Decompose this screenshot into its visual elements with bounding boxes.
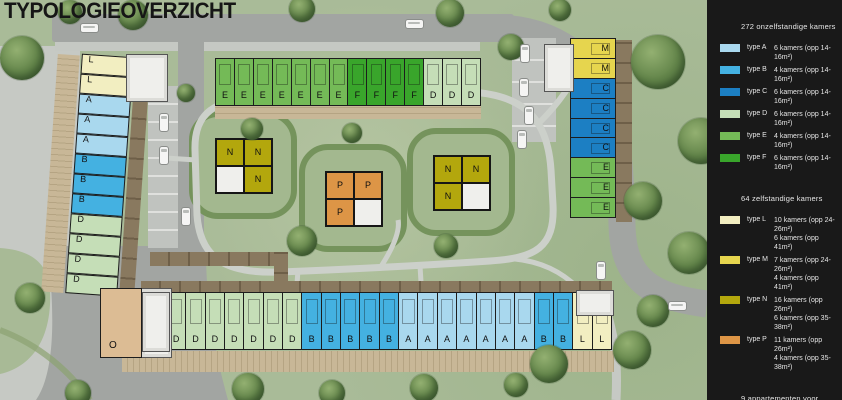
legend-row: type L10 kamers (opp 24-26m²)6 kamers (o…	[720, 216, 838, 252]
legend-panel: 272 onzelfstandige kamerstype A6 kamers …	[707, 0, 842, 400]
pavilion-east: NNN	[433, 155, 491, 211]
unit-label: M	[602, 64, 610, 73]
legend-type-label: type C	[747, 88, 774, 96]
legend-row: type M7 kamers (opp 24-26m²)4 kamers (op…	[720, 256, 838, 292]
tree	[177, 84, 195, 102]
unit-label: N	[473, 165, 480, 174]
legend-description: 16 kamers (opp 26m²)6 kamers (opp 35-38m…	[774, 296, 838, 332]
unit-label: D	[192, 335, 199, 344]
tree	[530, 345, 568, 383]
unit-label: A	[483, 335, 489, 344]
unit-label: D	[468, 91, 475, 100]
unit-label: A	[425, 335, 431, 344]
legend-type-label: type D	[747, 110, 774, 118]
unit-label: D	[72, 275, 80, 293]
tree	[232, 373, 264, 400]
unit-label: B	[79, 175, 86, 193]
unit-D: D	[424, 58, 443, 106]
legend-type-label: type M	[747, 256, 774, 264]
unit-B: B	[554, 292, 573, 350]
unit-label: F	[374, 91, 380, 100]
legend-swatch	[720, 296, 740, 304]
legend-section: 272 onzelfstandige kamerstype A6 kamers …	[720, 22, 838, 172]
legend-type-label: type N	[747, 296, 774, 304]
unit-M: M	[570, 38, 616, 59]
tree	[436, 0, 464, 27]
unit-A: A	[515, 292, 534, 350]
unit-label: P	[365, 181, 371, 190]
car	[80, 23, 99, 33]
unit-label: E	[298, 91, 304, 100]
unit-label: A	[502, 335, 508, 344]
unit-label: B	[367, 335, 373, 344]
unit-O: O	[100, 288, 142, 358]
tree	[15, 283, 45, 313]
unit-E: E	[570, 158, 616, 178]
legend-row: type P11 kamers (opp 26m²)4 kamers (opp …	[720, 336, 838, 372]
unit-label: L	[580, 335, 585, 344]
unit-label: C	[603, 84, 610, 93]
unit-D: D	[462, 58, 481, 106]
car	[159, 146, 169, 165]
legend-description: 6 kamers (opp 14-16m²)	[774, 88, 838, 106]
unit-label: E	[222, 91, 228, 100]
unit-E: E	[254, 58, 273, 106]
unit-label: D	[212, 335, 219, 344]
unit-label: E	[603, 163, 609, 172]
unit-label: D	[74, 255, 82, 273]
unit-label: A	[521, 335, 527, 344]
unit-A: A	[457, 292, 476, 350]
legend-type-label: type L	[747, 216, 774, 224]
unit-label: B	[78, 195, 85, 213]
legend-swatch	[720, 88, 740, 96]
tree	[287, 226, 317, 256]
legend-type-label: type F	[747, 154, 774, 162]
legend-row: type N16 kamers (opp 26m²)6 kamers (opp …	[720, 296, 838, 332]
unit-D: D	[225, 292, 244, 350]
car	[520, 44, 530, 63]
unit-label: E	[335, 91, 341, 100]
legend-type-label: type E	[747, 132, 774, 140]
unit-A: A	[418, 292, 437, 350]
unit-core	[462, 183, 490, 210]
legend-description: 4 kamers (opp 14-16m²)	[774, 66, 838, 84]
service-block-sw	[142, 292, 170, 352]
unit-F: F	[367, 58, 386, 106]
unit-label: E	[317, 91, 323, 100]
legend-type-label: type P	[747, 336, 774, 344]
gallery-link-h	[150, 252, 288, 266]
tree	[65, 380, 91, 400]
tree	[624, 182, 662, 220]
legend-section: 64 zelfstandige kamerstype L10 kamers (o…	[720, 194, 838, 372]
legend-swatch	[720, 44, 740, 52]
unit-D: D	[264, 292, 283, 350]
unit-label: D	[449, 91, 456, 100]
unit-B: B	[322, 292, 341, 350]
tree	[637, 295, 669, 327]
unit-label: F	[411, 91, 417, 100]
unit-label: B	[541, 335, 547, 344]
unit-label: C	[603, 143, 610, 152]
service-block-se	[576, 290, 614, 316]
tree	[504, 373, 528, 397]
pavilion-west: NNN	[215, 138, 273, 194]
unit-core	[216, 166, 244, 193]
unit-label: E	[279, 91, 285, 100]
unit-M: M	[570, 59, 616, 79]
legend-description: 4 kamers (opp 14-16m²)	[774, 132, 838, 150]
tree	[549, 0, 571, 21]
unit-A: A	[477, 292, 496, 350]
unit-E: E	[215, 58, 235, 106]
legend-swatch	[720, 66, 740, 74]
legend-swatch	[720, 110, 740, 118]
unit-label: L	[599, 335, 604, 344]
legend-sections: 272 onzelfstandige kamerstype A6 kamers …	[720, 22, 838, 400]
building-north: EEEEEEEFFFFDDD	[215, 58, 481, 106]
unit-label: F	[393, 91, 399, 100]
legend-description: 10 kamers (opp 24-26m²)6 kamers (opp 41m…	[774, 216, 838, 252]
legend-description: 11 kamers (opp 26m²)4 kamers (opp 35-38m…	[774, 336, 838, 372]
unit-label: A	[85, 95, 92, 113]
unit-label: N	[255, 148, 262, 157]
tree	[319, 380, 345, 400]
tree	[410, 374, 438, 400]
unit-label: E	[603, 203, 609, 212]
building-south: DDDDDDDBBBBBAAAAAAABBLL	[166, 292, 612, 350]
unit-N: N	[462, 156, 490, 183]
legend-swatch	[720, 154, 740, 162]
unit-C: C	[570, 79, 616, 99]
pavilion-center: PPP	[325, 171, 383, 227]
unit-label: E	[603, 183, 609, 192]
legend-description: 6 kamers (opp 14-16m²)	[774, 154, 838, 172]
unit-label: A	[82, 135, 89, 153]
unit-P: P	[326, 172, 354, 199]
unit-A: A	[399, 292, 418, 350]
unit-label: L	[86, 75, 92, 93]
legend-swatch	[720, 132, 740, 140]
legend-heading: 9 appartementen voor PhD-ers	[741, 394, 838, 400]
unit-label: D	[289, 335, 296, 344]
unit-E: E	[570, 198, 616, 218]
unit-F: F	[386, 58, 405, 106]
unit-F: F	[348, 58, 367, 106]
unit-E: E	[235, 58, 254, 106]
unit-N: N	[434, 156, 462, 183]
unit-E: E	[273, 58, 292, 106]
unit-label: N	[445, 192, 452, 201]
tree	[0, 36, 44, 80]
unit-F: F	[405, 58, 424, 106]
unit-label: A	[463, 335, 469, 344]
site-plan: LLAAABBBDDDD EEEEEEEFFFFDDD MMCCCCEEE DD…	[0, 0, 707, 400]
unit-label: N	[227, 148, 234, 157]
unit-B: B	[360, 292, 379, 350]
unit-label: M	[602, 44, 610, 53]
car	[405, 19, 424, 29]
legend-swatch	[720, 256, 740, 264]
unit-label: B	[386, 335, 392, 344]
car	[668, 301, 687, 311]
unit-label: C	[603, 124, 610, 133]
unit-label: D	[173, 335, 180, 344]
gallery-link-v	[274, 252, 288, 292]
legend-type-label: type B	[747, 66, 774, 74]
legend-swatch	[720, 216, 740, 224]
legend-description: 6 kamers (opp 14-16m²)	[774, 44, 838, 62]
legend-heading: 272 onzelfstandige kamers	[741, 22, 838, 31]
tree	[613, 331, 651, 369]
legend-description: 7 kamers (opp 24-26m²)4 kamers (opp 41m²…	[774, 256, 838, 292]
unit-E: E	[292, 58, 311, 106]
unit-A: A	[438, 292, 457, 350]
unit-label: D	[270, 335, 277, 344]
legend-type-label: type A	[747, 44, 774, 52]
unit-label: E	[260, 91, 266, 100]
unit-label: A	[444, 335, 450, 344]
unit-label: B	[328, 335, 334, 344]
car	[519, 78, 529, 97]
service-block-ne	[544, 44, 574, 92]
unit-label: D	[76, 215, 84, 233]
unit-N: N	[244, 166, 272, 193]
unit-C: C	[570, 119, 616, 139]
page-title: TYPOLOGIEOVERZICHT	[4, 0, 236, 24]
unit-label: B	[560, 335, 566, 344]
unit-B: B	[535, 292, 554, 350]
unit-label: P	[337, 181, 343, 190]
unit-label: B	[309, 335, 315, 344]
unit-D: D	[443, 58, 462, 106]
unit-label: N	[445, 165, 452, 174]
unit-P: P	[354, 172, 382, 199]
unit-A: A	[496, 292, 515, 350]
unit-N: N	[434, 183, 462, 210]
unit-B: B	[380, 292, 399, 350]
legend-heading: 64 zelfstandige kamers	[741, 194, 838, 203]
tree	[631, 35, 685, 89]
unit-N: N	[244, 139, 272, 166]
unit-D: D	[244, 292, 263, 350]
building-east: MMCCCCEEE	[570, 38, 616, 218]
top-sidewalk	[55, 42, 480, 51]
typology-overview-page: LLAAABBBDDDD EEEEEEEFFFFDDD MMCCCCEEE DD…	[0, 0, 842, 400]
unit-label: D	[250, 335, 257, 344]
legend-section: 9 appartementen voor PhD-erstype O9 app …	[720, 394, 838, 400]
legend-row: type E4 kamers (opp 14-16m²)	[720, 132, 838, 150]
service-block-nw	[126, 54, 168, 102]
unit-C: C	[570, 99, 616, 119]
parking-west	[148, 86, 178, 248]
unit-E: E	[330, 58, 349, 106]
unit-B: B	[302, 292, 321, 350]
unit-label: L	[88, 55, 94, 73]
unit-C: C	[570, 138, 616, 158]
unit-label: A	[83, 115, 90, 133]
legend-description: 6 kamers (opp 14-16m²)	[774, 110, 838, 128]
car	[181, 207, 191, 226]
unit-label: B	[81, 155, 88, 173]
unit-N: N	[216, 139, 244, 166]
unit-label: E	[241, 91, 247, 100]
unit-label: D	[75, 235, 83, 253]
legend-row: type B4 kamers (opp 14-16m²)	[720, 66, 838, 84]
unit-E: E	[311, 58, 330, 106]
unit-label: N	[255, 175, 262, 184]
legend-row: type C6 kamers (opp 14-16m²)	[720, 88, 838, 106]
tree	[434, 234, 458, 258]
unit-label: D	[430, 91, 437, 100]
unit-label: D	[231, 335, 238, 344]
car	[159, 113, 169, 132]
legend-row: type F6 kamers (opp 14-16m²)	[720, 154, 838, 172]
unit-label: C	[603, 104, 610, 113]
unit-label: P	[337, 208, 343, 217]
tree	[241, 118, 263, 140]
unit-label: A	[405, 335, 411, 344]
car	[517, 130, 527, 149]
unit-label: O	[109, 341, 117, 351]
unit-core	[354, 199, 382, 226]
unit-D: D	[186, 292, 205, 350]
unit-P: P	[326, 199, 354, 226]
boardwalk-north	[215, 106, 481, 119]
legend-row: type A6 kamers (opp 14-16m²)	[720, 44, 838, 62]
legend-row: type D6 kamers (opp 14-16m²)	[720, 110, 838, 128]
tree	[342, 123, 362, 143]
unit-label: B	[347, 335, 353, 344]
legend-swatch	[720, 336, 740, 344]
tree	[668, 232, 710, 274]
unit-E: E	[570, 178, 616, 198]
unit-D: D	[283, 292, 302, 350]
car	[524, 106, 534, 125]
unit-label: F	[355, 91, 361, 100]
unit-D: D	[206, 292, 225, 350]
car	[596, 261, 606, 280]
unit-B: B	[341, 292, 360, 350]
